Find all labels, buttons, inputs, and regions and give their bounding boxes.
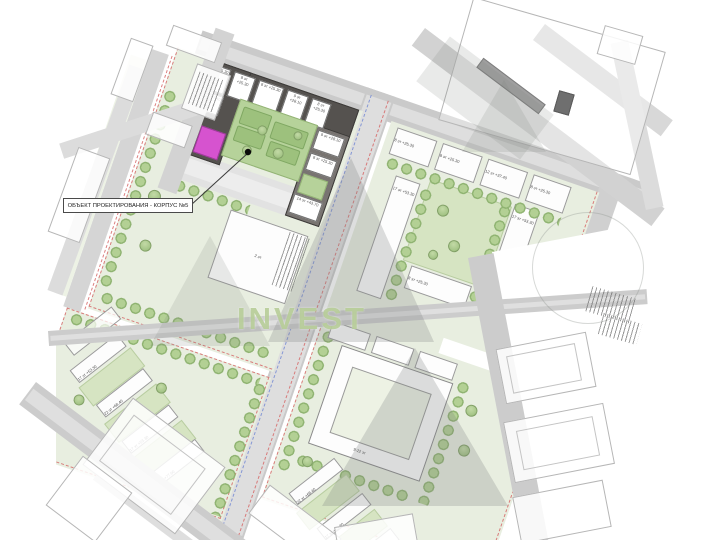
unit-label: 8 эт +25.30 bbox=[439, 153, 460, 164]
unit-label: 8 эт +25.30 bbox=[236, 75, 249, 87]
context-detail bbox=[506, 343, 582, 394]
context-detail bbox=[516, 416, 600, 470]
unit-label: 9-22 эт bbox=[353, 448, 367, 457]
unit-label: 8 эт +25.30 bbox=[313, 101, 326, 113]
roof-hatch bbox=[188, 72, 224, 113]
callout-label: ОБЪЕКТ ПРОЕКТИРОВАНИЯ - КОРПУС №5 bbox=[68, 203, 189, 209]
unit-label: 8 эт +25.30 bbox=[530, 184, 551, 195]
building-label: 2 эт bbox=[254, 254, 262, 261]
unit-label: 17 эт +53.30 bbox=[392, 185, 415, 197]
unit-label: 12 эт +37.40 bbox=[485, 168, 508, 180]
unit-label: 9 эт +28.10 bbox=[289, 93, 302, 105]
callout-label-box: ОБЪЕКТ ПРОЕКТИРОВАНИЯ - КОРПУС №5 bbox=[63, 198, 193, 213]
unit-label: 8 эт +25.30 bbox=[408, 275, 429, 286]
q4-ring-courtyard bbox=[330, 367, 432, 461]
left-margin bbox=[0, 0, 56, 540]
unit-label: 8 эт +25.30 bbox=[394, 137, 415, 148]
site-plan-canvas: 4 эт +15.30 8 эт +25.30 8 эт +25.30 9 эт… bbox=[0, 0, 720, 540]
